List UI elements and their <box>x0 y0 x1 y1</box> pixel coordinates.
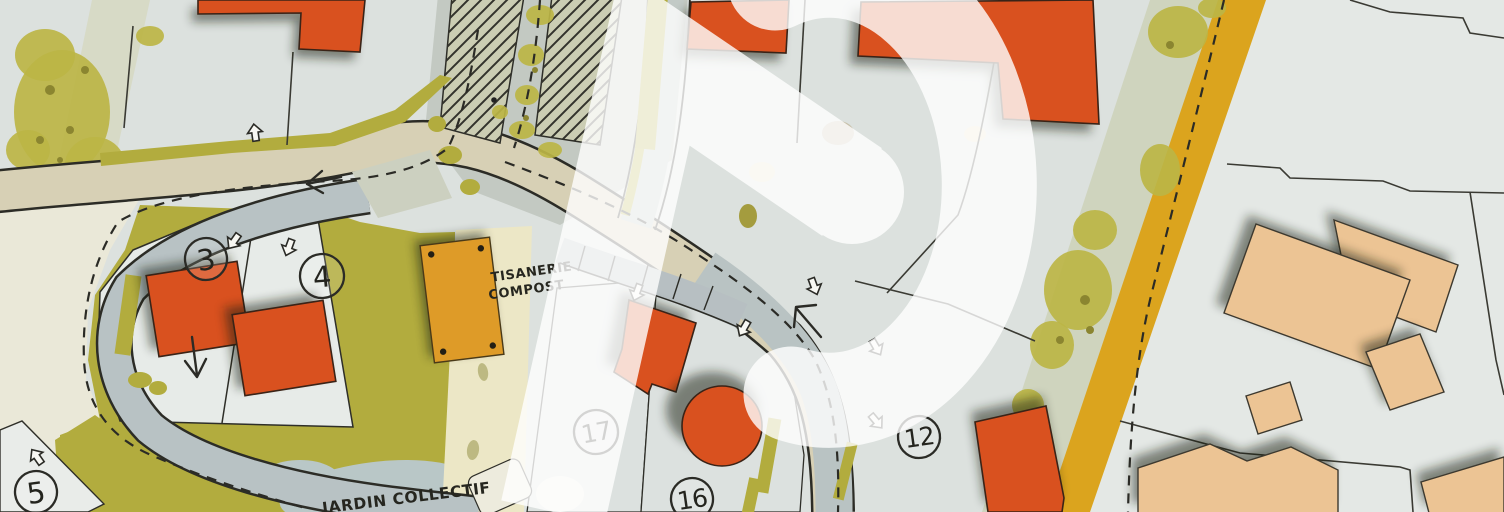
lot-number-16: 16 <box>675 483 709 512</box>
building-lot4 <box>224 292 336 396</box>
site-plan-scan: 3 4 5 17 16 12 TISANERIE COMPOST JARDIN … <box>0 0 1504 512</box>
lot-number-4: 4 <box>311 259 332 294</box>
tree-symbol-dot <box>491 97 497 103</box>
site-plan-svg: 3 4 5 17 16 12 TISANERIE COMPOST JARDIN … <box>0 0 1504 512</box>
logo-chevron-cap <box>800 140 904 244</box>
